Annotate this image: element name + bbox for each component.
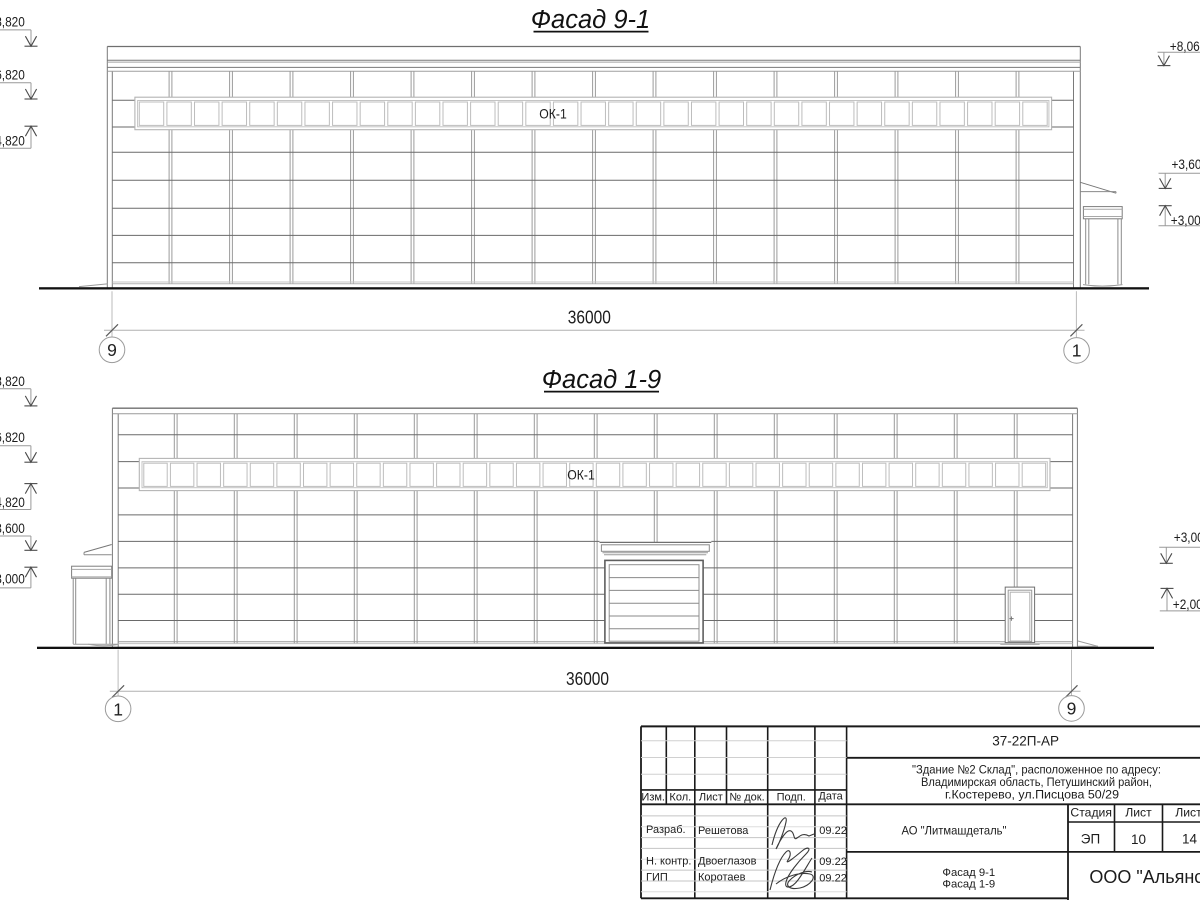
- svg-text:14: 14: [1182, 832, 1198, 847]
- svg-text:Лист: Лист: [1175, 806, 1200, 820]
- svg-text:Фасад 9-1: Фасад 9-1: [942, 867, 995, 879]
- svg-text:Лист: Лист: [1125, 806, 1152, 820]
- svg-text:9: 9: [107, 340, 117, 360]
- svg-text:+3,000: +3,000: [1174, 530, 1200, 546]
- svg-text:+2,000: +2,000: [1173, 597, 1200, 613]
- svg-text:36000: 36000: [566, 668, 609, 689]
- svg-text:1: 1: [1072, 341, 1082, 361]
- svg-text:1: 1: [113, 700, 123, 720]
- svg-text:ОК-1: ОК-1: [539, 107, 567, 122]
- svg-text:+3,600: +3,600: [0, 521, 25, 537]
- svg-text:Фасад 1-9: Фасад 1-9: [542, 366, 661, 394]
- svg-text:Изм.: Изм.: [641, 792, 665, 804]
- svg-text:Фасад 9-1: Фасад 9-1: [531, 6, 650, 34]
- svg-text:09.22: 09.22: [819, 825, 847, 837]
- svg-text:+8,820: +8,820: [0, 15, 25, 31]
- svg-text:АО "Литмашдеталь": АО "Литмашдеталь": [902, 824, 1007, 838]
- svg-text:№ док.: № док.: [729, 792, 764, 804]
- svg-text:ОК-1: ОК-1: [567, 468, 595, 483]
- svg-text:Дата: Дата: [818, 790, 843, 802]
- svg-text:+8,820: +8,820: [0, 374, 25, 390]
- svg-text:+3,000: +3,000: [1171, 213, 1200, 229]
- svg-text:+3,600: +3,600: [1172, 157, 1200, 173]
- svg-text:Коротаев: Коротаев: [698, 872, 746, 884]
- svg-text:10: 10: [1131, 832, 1146, 847]
- svg-text:ГИП: ГИП: [646, 871, 668, 883]
- svg-text:+4,820: +4,820: [0, 495, 25, 511]
- svg-text:Кол.: Кол.: [669, 792, 691, 804]
- svg-text:36000: 36000: [568, 306, 611, 327]
- svg-text:Подп.: Подп.: [777, 792, 806, 804]
- svg-text:+3,000: +3,000: [0, 571, 25, 587]
- svg-text:+8,060: +8,060: [1170, 39, 1200, 55]
- svg-text:+6,820: +6,820: [0, 430, 25, 446]
- svg-text:37-22П-АР: 37-22П-АР: [992, 733, 1059, 748]
- svg-text:+6,820: +6,820: [0, 67, 25, 83]
- svg-text:09.22: 09.22: [819, 873, 847, 885]
- svg-text:+4,820: +4,820: [0, 134, 25, 150]
- svg-text:Двоеглазов: Двоеглазов: [698, 856, 757, 868]
- svg-text:ЭП: ЭП: [1081, 831, 1100, 846]
- svg-text:ООО "Альянс": ООО "Альянс": [1089, 867, 1200, 887]
- svg-text:Стадия: Стадия: [1070, 806, 1112, 820]
- svg-text:г.Костерево, ул.Писцова 50/29: г.Костерево, ул.Писцова 50/29: [945, 787, 1119, 801]
- svg-text:Лист: Лист: [699, 792, 723, 804]
- svg-text:09.22: 09.22: [819, 856, 847, 868]
- svg-text:9: 9: [1067, 699, 1077, 719]
- svg-text:Разраб.: Разраб.: [646, 824, 686, 836]
- svg-text:Фасад 1-9: Фасад 1-9: [942, 879, 995, 891]
- svg-text:Решетова: Решетова: [698, 825, 749, 837]
- svg-text:Н. контр.: Н. контр.: [646, 856, 691, 868]
